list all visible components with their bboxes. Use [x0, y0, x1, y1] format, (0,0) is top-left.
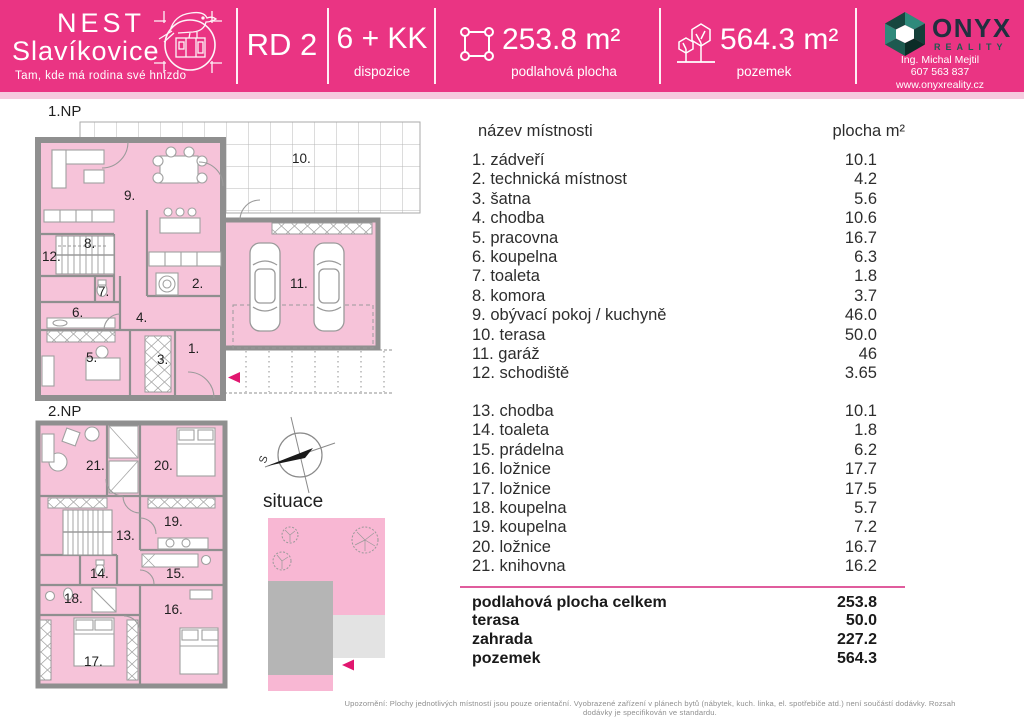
room-name: 13. chodba — [460, 402, 554, 421]
room-name: 20. ložnice — [460, 538, 551, 557]
header-divider — [855, 8, 857, 84]
column-header-name: název místnosti — [460, 122, 593, 144]
room-label: 6. — [72, 305, 83, 320]
plan2-title: 2.NP — [48, 403, 81, 420]
room-area: 6.2 — [854, 441, 877, 460]
column-header-area: plocha m² — [833, 122, 905, 144]
summary-block: podlahová plocha celkem253.8 terasa50.0 … — [460, 594, 905, 669]
summary-label: podlahová plocha celkem — [460, 594, 667, 613]
brand-name-line2: Slavíkovice — [12, 36, 160, 67]
table-row: 4. chodba10.6 — [460, 209, 905, 228]
summary-divider — [460, 586, 905, 588]
room-area: 46.0 — [845, 306, 877, 325]
brand-name-line1: NEST — [57, 8, 145, 39]
property-datasheet: { "header": { "brand": { "line1": "NEST"… — [0, 0, 1024, 724]
header-divider — [327, 8, 329, 84]
table-row: 10. terasa50.0 — [460, 326, 905, 345]
table-row: 15. prádelna6.2 — [460, 441, 905, 460]
table-row: 6. koupelna6.3 — [460, 248, 905, 267]
room-label: 4. — [136, 310, 147, 325]
site-blocks — [268, 518, 385, 691]
table-row: 2. technická místnost4.2 — [460, 170, 905, 189]
room-label: 7. — [98, 284, 109, 299]
summary-row: podlahová plocha celkem253.8 — [460, 594, 905, 613]
header-accent-strip — [0, 92, 1024, 99]
room-area: 17.7 — [845, 460, 877, 479]
table-row: 12. schodiště3.65 — [460, 364, 905, 383]
table-row: 9. obývací pokoj / kuchyně46.0 — [460, 306, 905, 325]
room-label: 2. — [192, 276, 203, 291]
summary-row: zahrada227.2 — [460, 631, 905, 650]
table-row: 3. šatna5.6 — [460, 190, 905, 209]
plot-area-value: 564.3 m² — [720, 23, 838, 57]
room-name: 9. obývací pokoj / kuchyně — [460, 306, 666, 325]
room-name: 11. garáž — [460, 345, 540, 364]
onyx-gem-logo-icon — [882, 10, 928, 58]
summary-label: terasa — [460, 612, 519, 631]
floor-area-icon — [458, 25, 496, 63]
room-area: 16.2 — [845, 557, 877, 576]
room-label: 11. — [290, 276, 308, 291]
room-area: 7.2 — [854, 518, 877, 537]
table-row: 1. zádveří10.1 — [460, 151, 905, 170]
room-area: 5.7 — [854, 499, 877, 518]
room-area: 3.7 — [854, 287, 877, 306]
footer-disclaimer: Upozornění: Plochy jednotlivých místnost… — [335, 699, 965, 717]
room-area: 10.1 — [845, 402, 877, 421]
room-label: 12. — [42, 249, 61, 264]
header-divider — [659, 8, 661, 84]
room-label: 9. — [124, 188, 135, 203]
unit-label: RD 2 — [236, 27, 328, 63]
table-row: 11. garáž46 — [460, 345, 905, 364]
room-label: 1. — [188, 341, 199, 356]
car-icon — [314, 243, 344, 331]
room-area: 16.7 — [845, 229, 877, 248]
compass-icon: S — [257, 417, 335, 493]
plan1-title: 1.NP — [48, 103, 81, 120]
agent-name: Ing. Michal Mejtil — [858, 54, 1022, 66]
site-plan-title: situace — [263, 491, 323, 512]
compass-north-label: S — [257, 454, 271, 465]
site-plan: S situace — [253, 406, 438, 711]
floorplan-2np: 2.NP — [28, 400, 268, 702]
room-area: 6.3 — [854, 248, 877, 267]
agency-wordmark-sub: REALITY — [934, 42, 1008, 52]
summary-row: terasa50.0 — [460, 612, 905, 631]
room-name: 7. toaleta — [460, 267, 540, 286]
entrance-arrow-icon — [342, 660, 354, 671]
disposition-value: 6 + KK — [330, 22, 434, 56]
room-label: 3. — [157, 352, 168, 367]
room-label: 10. — [292, 151, 311, 166]
room-label: 15. — [166, 566, 185, 581]
summary-value: 253.8 — [837, 594, 877, 613]
room-label: 16. — [164, 602, 183, 617]
garage-wardrobe-band — [272, 223, 372, 234]
plot-area-caption: pozemek — [710, 64, 818, 79]
table-row: 8. komora3.7 — [460, 287, 905, 306]
room-name: 19. koupelna — [460, 518, 567, 537]
room-area: 3.65 — [845, 364, 877, 383]
table-row: 20. ložnice16.7 — [460, 538, 905, 557]
summary-value: 50.0 — [846, 612, 877, 631]
room-label: 19. — [164, 514, 183, 529]
table-row: 18. koupelna5.7 — [460, 499, 905, 518]
room-name: 12. schodiště — [460, 364, 569, 383]
room-label: 20. — [154, 458, 173, 473]
agency-contacts: Ing. Michal Mejtil 607 563 837 www.onyxr… — [858, 54, 1022, 91]
floor-area-value: 253.8 m² — [502, 23, 620, 57]
room-label: 17. — [84, 654, 103, 669]
table-row: 7. toaleta1.8 — [460, 267, 905, 286]
summary-row: pozemek564.3 — [460, 650, 905, 669]
room-name: 3. šatna — [460, 190, 531, 209]
room-name: 1. zádveří — [460, 151, 544, 170]
agent-phone: 607 563 837 — [858, 66, 1022, 78]
table-row: 19. koupelna7.2 — [460, 518, 905, 537]
table-row: 14. toaleta1.8 — [460, 421, 905, 440]
table-row: 13. chodba10.1 — [460, 402, 905, 421]
room-area: 10.6 — [845, 209, 877, 228]
room-name: 5. pracovna — [460, 229, 558, 248]
room-name: 18. koupelna — [460, 499, 567, 518]
room-area: 16.7 — [845, 538, 877, 557]
room-name: 2. technická místnost — [460, 170, 627, 189]
plot-trees-icon — [674, 18, 718, 68]
room-name: 8. komora — [460, 287, 545, 306]
floor-area-caption: podlahová plocha — [494, 64, 634, 79]
room-name: 6. koupelna — [460, 248, 557, 267]
summary-label: zahrada — [460, 631, 532, 650]
table-header-row: název místnosti plocha m² — [460, 122, 905, 144]
summary-value: 227.2 — [837, 631, 877, 650]
room-name: 21. knihovna — [460, 557, 566, 576]
room-area: 50.0 — [845, 326, 877, 345]
room-label: 18. — [64, 591, 83, 606]
stairs-icon — [63, 510, 112, 555]
room-table: název místnosti plocha m² 1. zádveří10.1… — [460, 122, 905, 669]
room-label: 5. — [86, 350, 97, 365]
disposition-caption: dispozice — [330, 64, 434, 79]
room-name: 14. toaleta — [460, 421, 549, 440]
agency-website-link[interactable]: www.onyxreality.cz — [858, 79, 1022, 91]
room-label: 13. — [116, 528, 135, 543]
table-row: 16. ložnice17.7 — [460, 460, 905, 479]
floorplan-1np: 1.NP — [28, 100, 424, 402]
room-label: 14. — [90, 566, 109, 581]
room-label: 8. — [84, 236, 95, 251]
room-area: 10.1 — [845, 151, 877, 170]
room-name: 15. prádelna — [460, 441, 564, 460]
house-footprint — [268, 581, 333, 675]
room-area: 4.2 — [854, 170, 877, 189]
table-row: 17. ložnice17.5 — [460, 480, 905, 499]
agency-wordmark: ONYX — [932, 13, 1012, 44]
table-row: 21. knihovna16.2 — [460, 557, 905, 576]
summary-label: pozemek — [460, 650, 540, 669]
room-name: 4. chodba — [460, 209, 544, 228]
room-name: 17. ložnice — [460, 480, 551, 499]
garden-strip — [268, 675, 333, 691]
nest-bird-logo-icon — [146, 3, 230, 79]
header-bar: NEST Slavíkovice Tam, kde má rodina své … — [0, 0, 1024, 92]
room-area: 17.5 — [845, 480, 877, 499]
room-area: 1.8 — [854, 421, 877, 440]
header-divider — [434, 8, 436, 84]
room-area: 46 — [859, 345, 877, 364]
room-name: 16. ložnice — [460, 460, 551, 479]
car-icon — [250, 243, 280, 331]
room-area: 5.6 — [854, 190, 877, 209]
room-label: 21. — [86, 458, 105, 473]
driveway — [223, 348, 393, 395]
room-name: 10. terasa — [460, 326, 545, 345]
summary-value: 564.3 — [837, 650, 877, 669]
room-area: 1.8 — [854, 267, 877, 286]
driveway-area — [333, 615, 385, 658]
table-row: 5. pracovna16.7 — [460, 229, 905, 248]
